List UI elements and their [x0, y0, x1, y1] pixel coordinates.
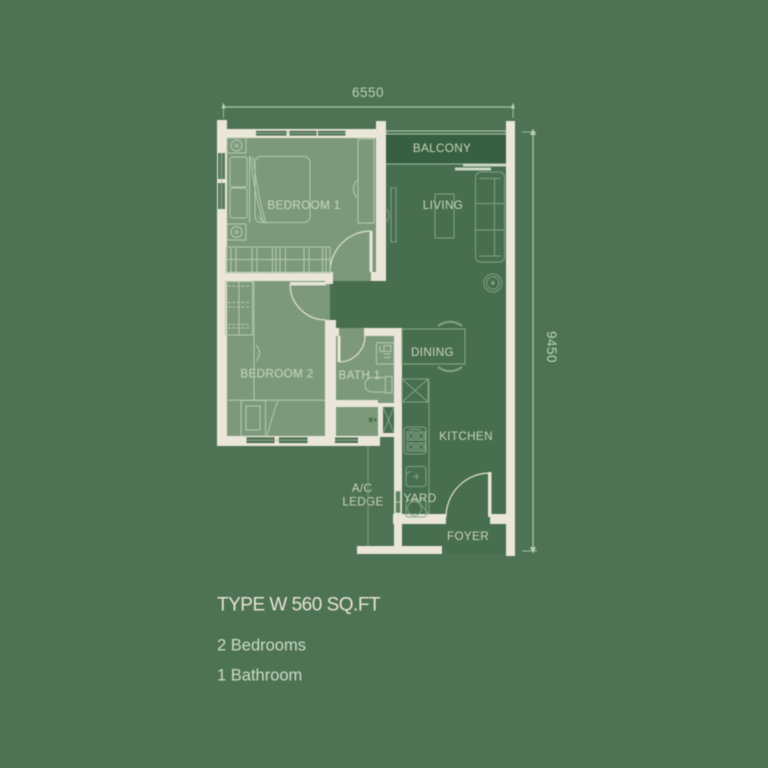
- svg-text:KITCHEN: KITCHEN: [439, 430, 493, 443]
- svg-text:9450: 9450: [544, 331, 559, 363]
- svg-text:FOYER: FOYER: [447, 530, 489, 543]
- svg-text:DINING: DINING: [411, 346, 454, 359]
- svg-text:BATH 1: BATH 1: [338, 369, 380, 382]
- svg-text:LIVING: LIVING: [423, 199, 463, 212]
- svg-text:2 Bedrooms: 2 Bedrooms: [217, 637, 306, 655]
- svg-text:6550: 6550: [352, 85, 384, 100]
- svg-text:BEDROOM 2: BEDROOM 2: [240, 368, 313, 381]
- svg-text:A/C: A/C: [352, 482, 373, 495]
- svg-text:BEDROOM 1: BEDROOM 1: [267, 199, 340, 212]
- svg-text:BALCONY: BALCONY: [413, 142, 471, 155]
- svg-text:TYPE W 560 SQ.FT: TYPE W 560 SQ.FT: [217, 595, 381, 616]
- svg-text:YARD: YARD: [403, 492, 436, 505]
- svg-text:LEDGE: LEDGE: [342, 496, 383, 509]
- svg-text:1 Bathroom: 1 Bathroom: [217, 667, 302, 685]
